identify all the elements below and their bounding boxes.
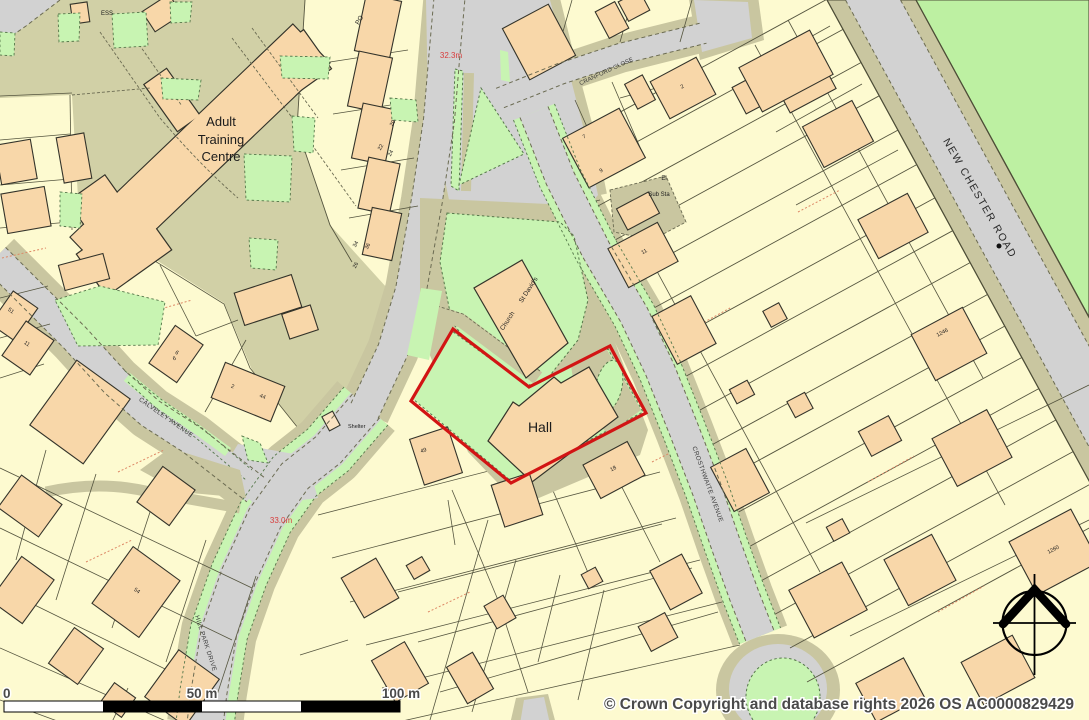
svg-text:El: El	[661, 176, 666, 182]
svg-text:Shelter: Shelter	[348, 424, 366, 430]
svg-text:Adult: Adult	[206, 114, 236, 129]
svg-text:100 m: 100 m	[382, 686, 420, 701]
svg-text:ESS: ESS	[101, 11, 113, 17]
svg-text:50 m: 50 m	[187, 686, 218, 701]
svg-text:0: 0	[3, 686, 11, 701]
svg-text:Sub Sta: Sub Sta	[648, 192, 670, 198]
svg-text:Centre: Centre	[201, 149, 240, 164]
svg-text:Training: Training	[198, 132, 244, 147]
svg-text:33.0m: 33.0m	[270, 516, 293, 525]
svg-text:Hall: Hall	[528, 419, 552, 435]
svg-text:© Crown Copyright and database: © Crown Copyright and database rights 20…	[604, 696, 1074, 713]
svg-text:32.3m: 32.3m	[440, 51, 463, 60]
